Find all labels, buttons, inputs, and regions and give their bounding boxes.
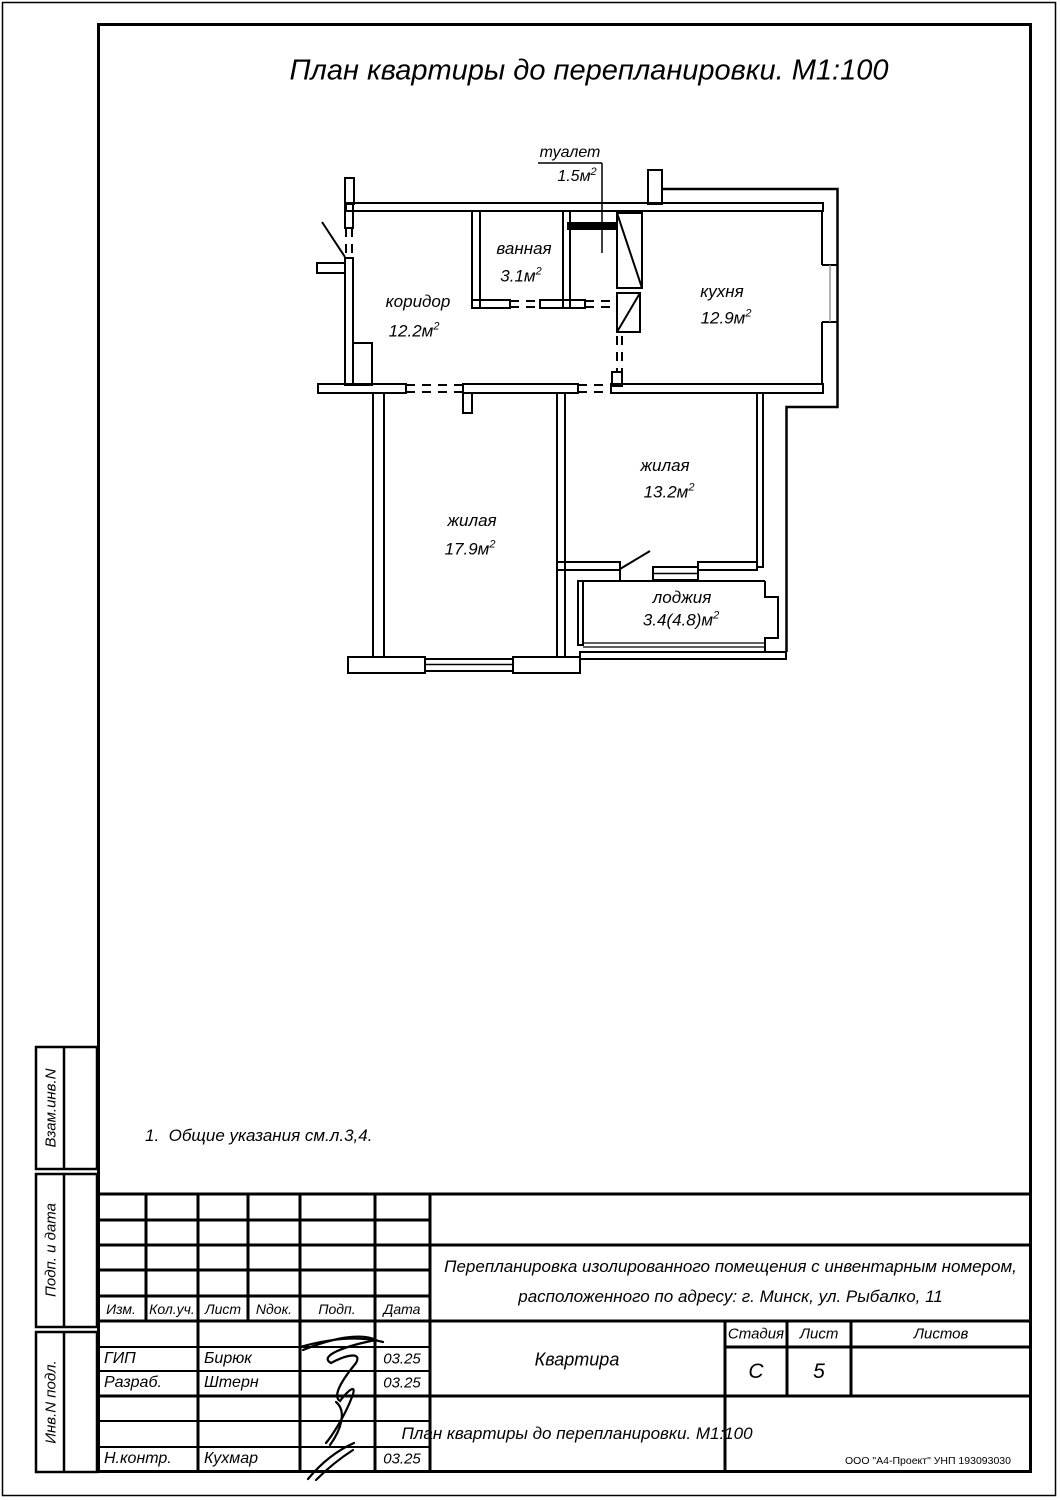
room-label-living2: жилая xyxy=(640,456,689,476)
col-header-list: Лист xyxy=(205,1301,241,1317)
date-razrab: 03.25 xyxy=(383,1375,421,1392)
project-line-1: Перепланировка изолированного помещения … xyxy=(430,1252,1031,1282)
area-label-bathroom: 3.1м2 xyxy=(500,266,541,287)
floor-plan xyxy=(317,163,838,673)
col-header-izm: Изм. xyxy=(106,1301,136,1317)
role-razrab: Разраб. xyxy=(104,1374,162,1392)
role-gip: ГИП xyxy=(104,1350,136,1368)
company-name: ООО "А4-Проект" УНП 193093030 xyxy=(845,1455,1011,1467)
drawing-sheet: План квартиры до перепланировки. М1:100 … xyxy=(0,0,1060,1500)
drawing-title: План квартиры до перепланировки. М1:100 xyxy=(401,1424,752,1444)
room-label-bathroom: ванная xyxy=(496,239,551,259)
page-title: План квартиры до перепланировки. М1:100 xyxy=(290,55,889,88)
role-nkontr: Н.контр. xyxy=(104,1450,172,1468)
sheet-label: Лист xyxy=(800,1326,839,1343)
sheets-label: Листов xyxy=(914,1326,969,1343)
project-line-2: расположенного по адресу: г. Минск, ул. … xyxy=(430,1282,1031,1312)
sheet-value: 5 xyxy=(813,1360,825,1384)
living1-window xyxy=(425,659,513,671)
balcony-door xyxy=(620,551,650,580)
room-label-living1: жилая xyxy=(447,511,496,531)
date-gip: 03.25 xyxy=(383,1351,421,1368)
room-label-kitchen: кухня xyxy=(700,282,743,302)
side-strip-label-vzam: Взам.инв.N xyxy=(43,1068,60,1147)
name-razrab: Штерн xyxy=(204,1374,259,1392)
room-label-toilet: туалет xyxy=(540,144,601,162)
area-label-living2: 13.2м2 xyxy=(644,482,695,503)
stage-label: Стадия xyxy=(728,1326,784,1343)
room-label-corridor: коридор xyxy=(386,292,451,312)
name-nkontr: Кухмар xyxy=(204,1450,258,1468)
col-header-data: Дата xyxy=(384,1301,421,1317)
project-description: Перепланировка изолированного помещения … xyxy=(430,1252,1031,1312)
side-strip-label-podp: Подп. и дата xyxy=(43,1203,60,1297)
stage-value: С xyxy=(748,1360,763,1384)
area-label-loggia: 3.4(4.8)м2 xyxy=(643,610,719,631)
area-label-kitchen: 12.9м2 xyxy=(701,308,752,329)
note-text: 1. Общие указания см.л.3,4. xyxy=(145,1126,372,1146)
room-label-loggia: лоджия xyxy=(653,588,712,608)
area-label-living1: 17.9м2 xyxy=(445,539,496,560)
side-strip-label-inv: Инв.N подл. xyxy=(43,1360,60,1444)
toilet-partition xyxy=(567,222,618,230)
vent-shafts xyxy=(617,213,642,332)
col-header-podp: Подп. xyxy=(318,1301,355,1317)
name-gip: Бирюк xyxy=(204,1350,252,1368)
col-header-ndok: Nдок. xyxy=(256,1301,292,1317)
doorway-dashes xyxy=(406,385,611,392)
area-label-corridor: 12.2м2 xyxy=(389,321,440,342)
object-name: Квартира xyxy=(535,1350,620,1371)
kitchen-window xyxy=(822,211,838,384)
col-header-koluch: Кол.уч. xyxy=(149,1301,195,1317)
balcony-window xyxy=(653,567,698,580)
date-nkontr: 03.25 xyxy=(383,1451,421,1468)
area-label-toilet: 1.5м2 xyxy=(557,166,596,186)
signatures xyxy=(300,1337,383,1480)
